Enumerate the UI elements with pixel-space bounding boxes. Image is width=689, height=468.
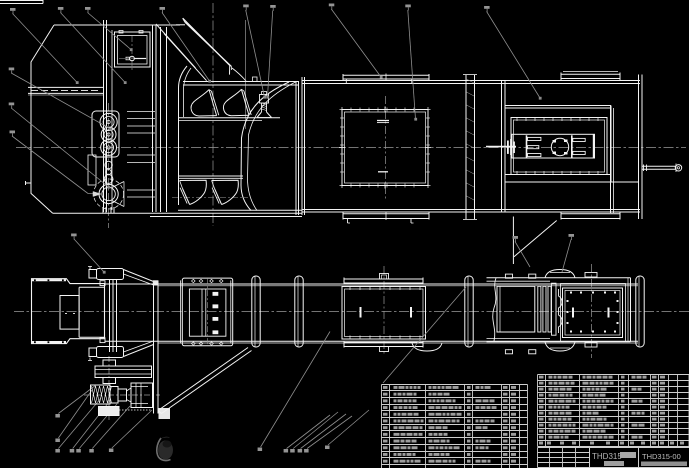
svg-text:THD315: THD315: [592, 452, 622, 461]
svg-text:THD315-00: THD315-00: [642, 452, 681, 461]
